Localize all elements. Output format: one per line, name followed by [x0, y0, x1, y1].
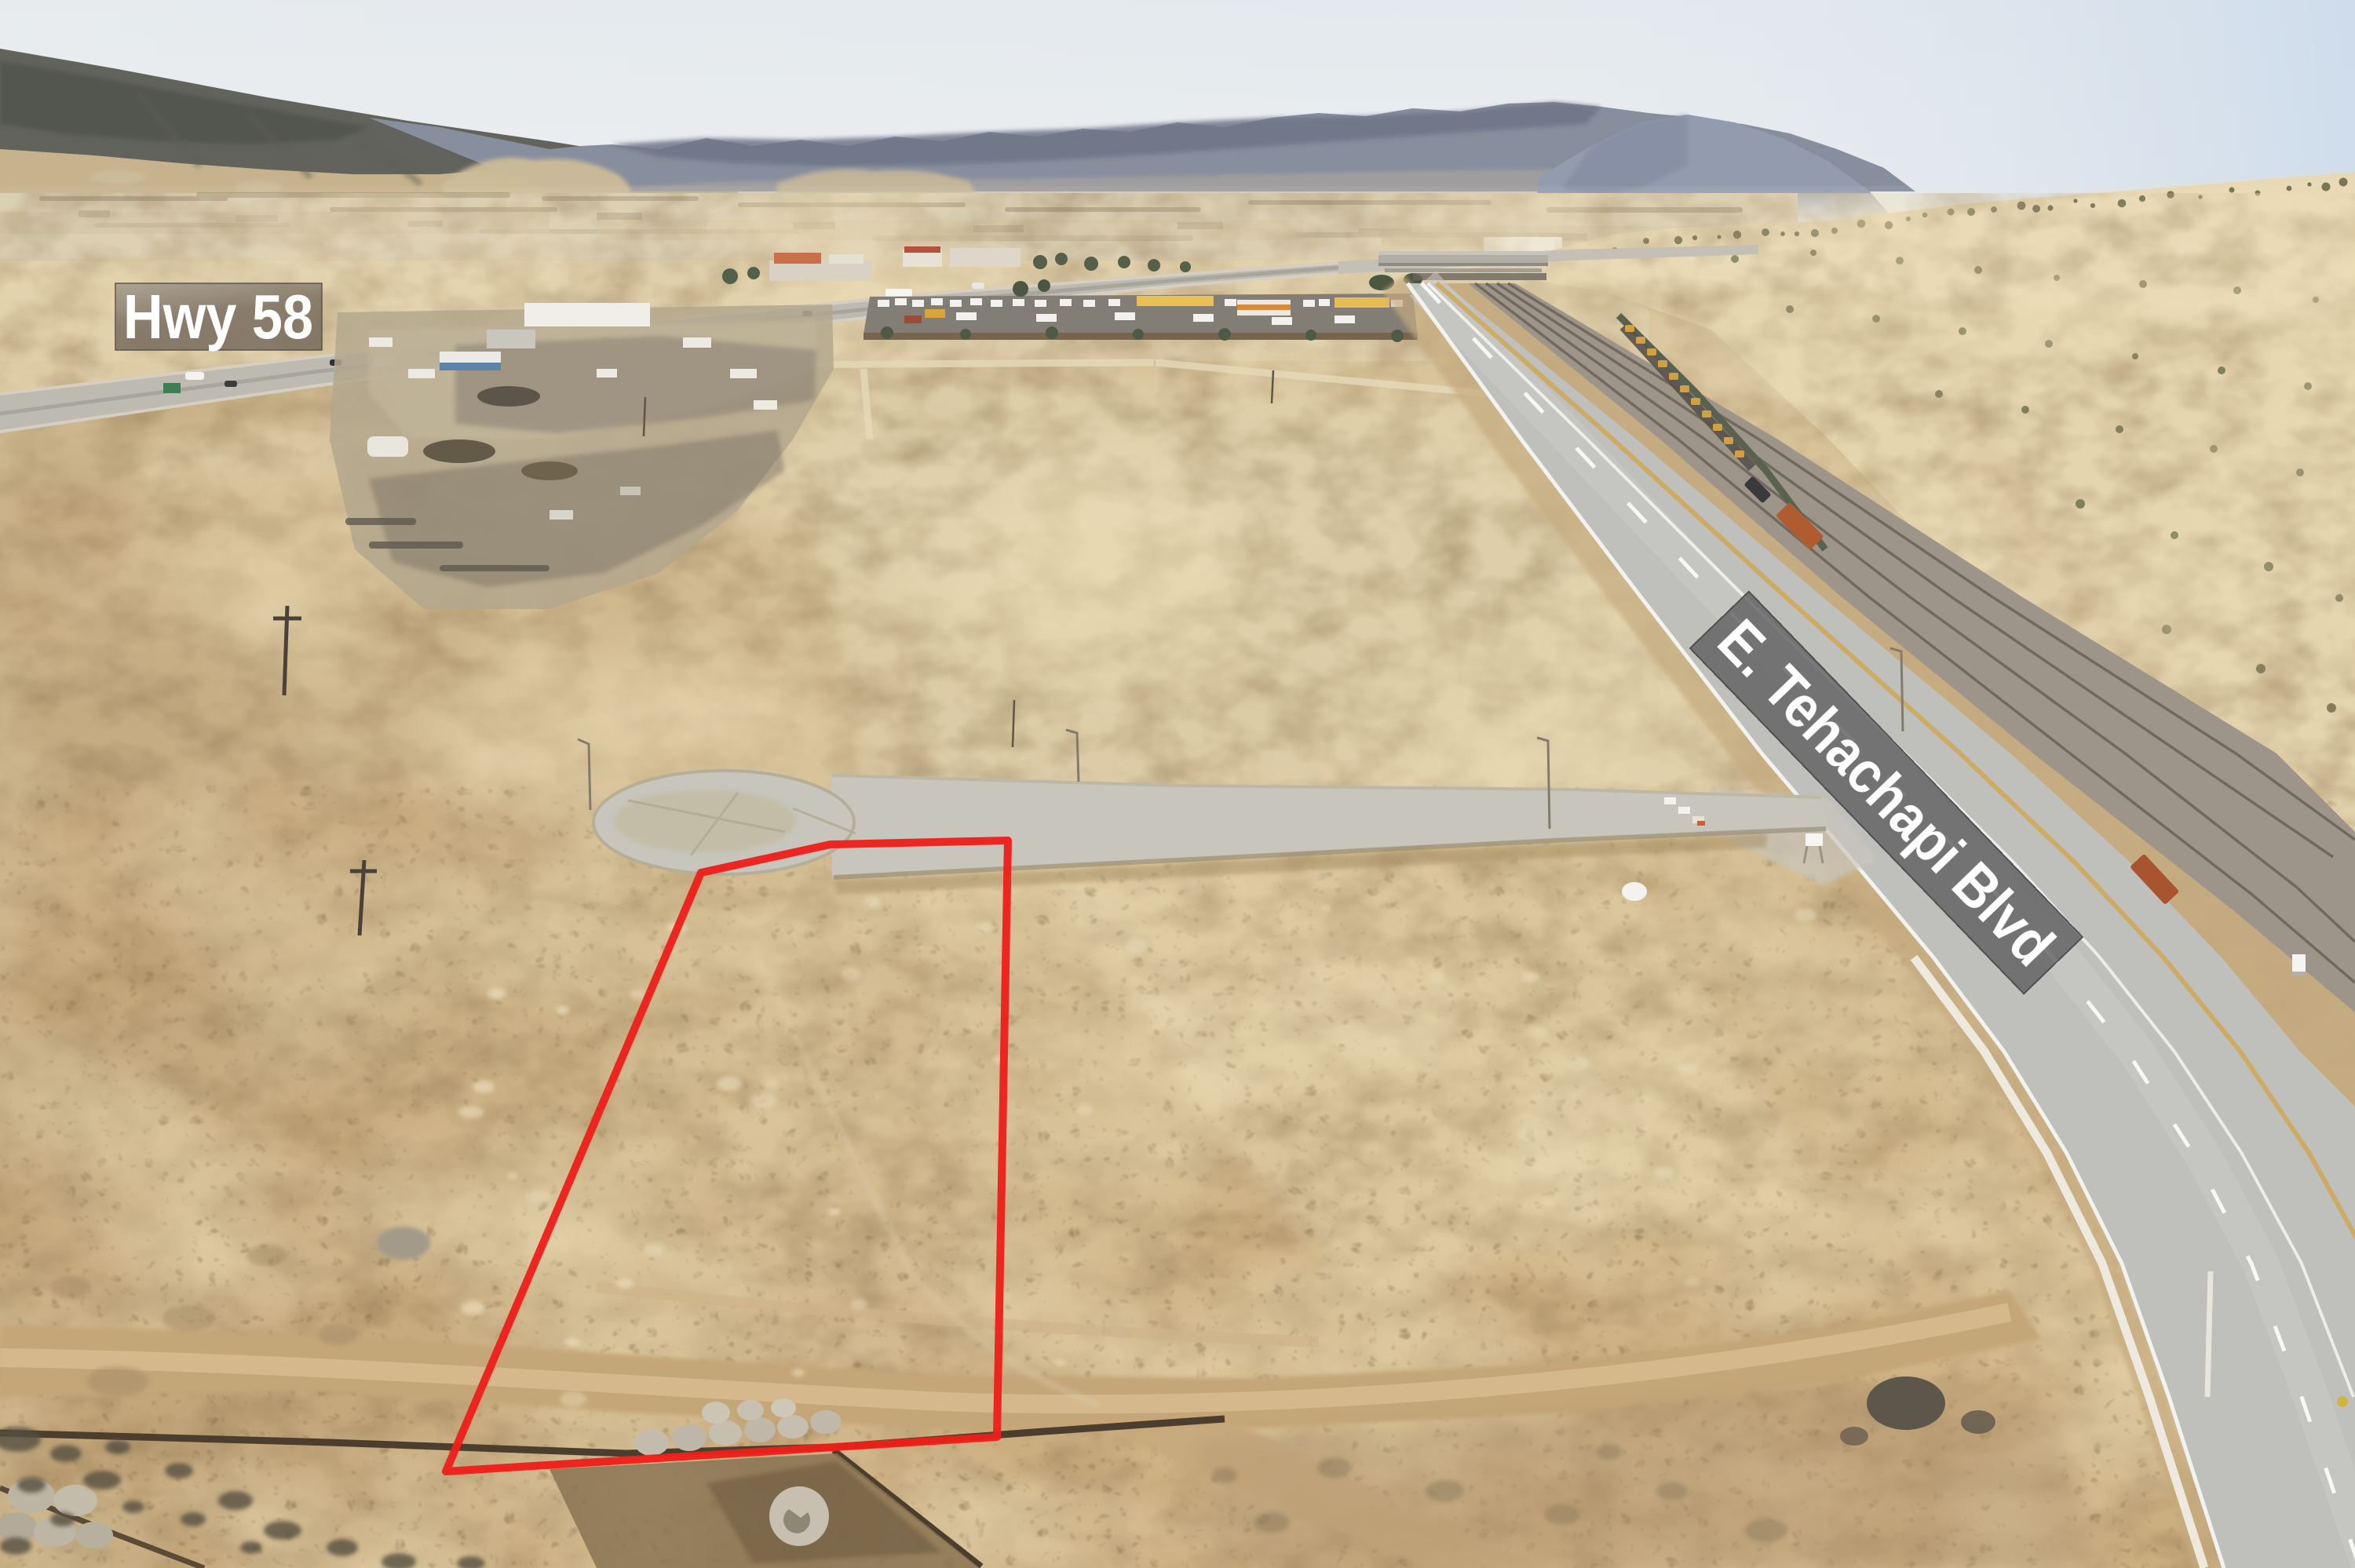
svg-text:Hwy 58: Hwy 58	[123, 282, 313, 352]
